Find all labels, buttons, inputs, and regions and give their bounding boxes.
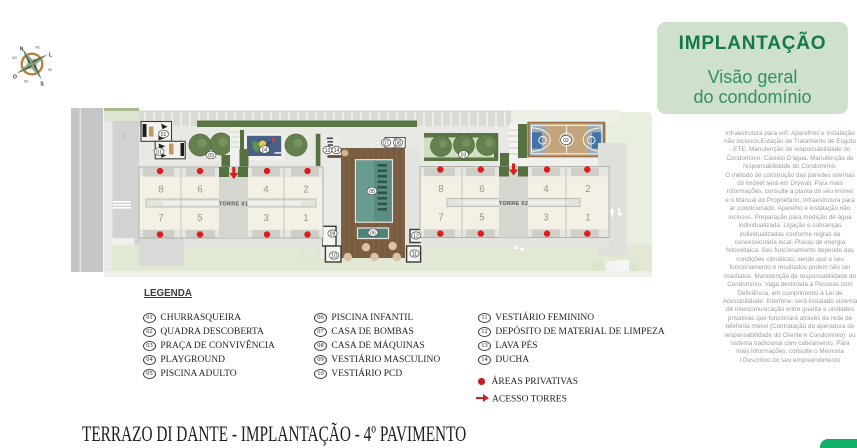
svg-text:2: 2 <box>585 184 590 195</box>
svg-text:4: 4 <box>543 184 549 195</box>
svg-text:TORRE 02: TORRE 02 <box>499 201 528 207</box>
svg-text:09: 09 <box>330 231 336 237</box>
svg-text:01: 01 <box>156 149 162 155</box>
svg-text:1: 1 <box>585 213 590 224</box>
svg-text:S: S <box>40 82 44 88</box>
svg-text:14: 14 <box>334 148 340 154</box>
svg-text:3: 3 <box>543 213 549 224</box>
svg-text:02: 02 <box>563 138 569 144</box>
svg-text:5: 5 <box>197 213 203 224</box>
svg-text:03: 03 <box>461 152 467 158</box>
svg-text:7: 7 <box>158 213 163 224</box>
svg-text:8: 8 <box>438 184 444 195</box>
svg-text:03: 03 <box>208 153 214 159</box>
svg-text:TORRE 01: TORRE 01 <box>219 202 248 208</box>
svg-text:6: 6 <box>197 185 203 196</box>
svg-text:10: 10 <box>331 253 337 259</box>
svg-text:3: 3 <box>263 213 269 224</box>
svg-text:SE: SE <box>48 68 52 72</box>
svg-text:L: L <box>49 53 52 59</box>
svg-text:07: 07 <box>383 140 389 146</box>
svg-text:6: 6 <box>479 184 485 195</box>
svg-text:2: 2 <box>303 185 308 196</box>
svg-text:06: 06 <box>370 230 376 236</box>
svg-text:12: 12 <box>413 233 419 239</box>
svg-text:13: 13 <box>325 148 331 154</box>
svg-text:SO: SO <box>24 80 29 84</box>
svg-text:11: 11 <box>412 251 417 257</box>
svg-text:01: 01 <box>161 132 167 138</box>
svg-text:4: 4 <box>263 185 269 196</box>
svg-text:O: O <box>13 75 17 81</box>
svg-text:N: N <box>20 47 24 53</box>
svg-text:8: 8 <box>158 185 164 196</box>
svg-text:5: 5 <box>479 213 485 224</box>
svg-text:08: 08 <box>395 140 401 146</box>
svg-text:NE: NE <box>35 46 39 50</box>
svg-text:1: 1 <box>303 213 308 224</box>
svg-text:NO: NO <box>12 56 17 60</box>
svg-text:7: 7 <box>438 213 443 224</box>
svg-text:1: 1 <box>122 132 127 141</box>
svg-text:05: 05 <box>369 189 375 195</box>
svg-text:04: 04 <box>262 147 268 153</box>
